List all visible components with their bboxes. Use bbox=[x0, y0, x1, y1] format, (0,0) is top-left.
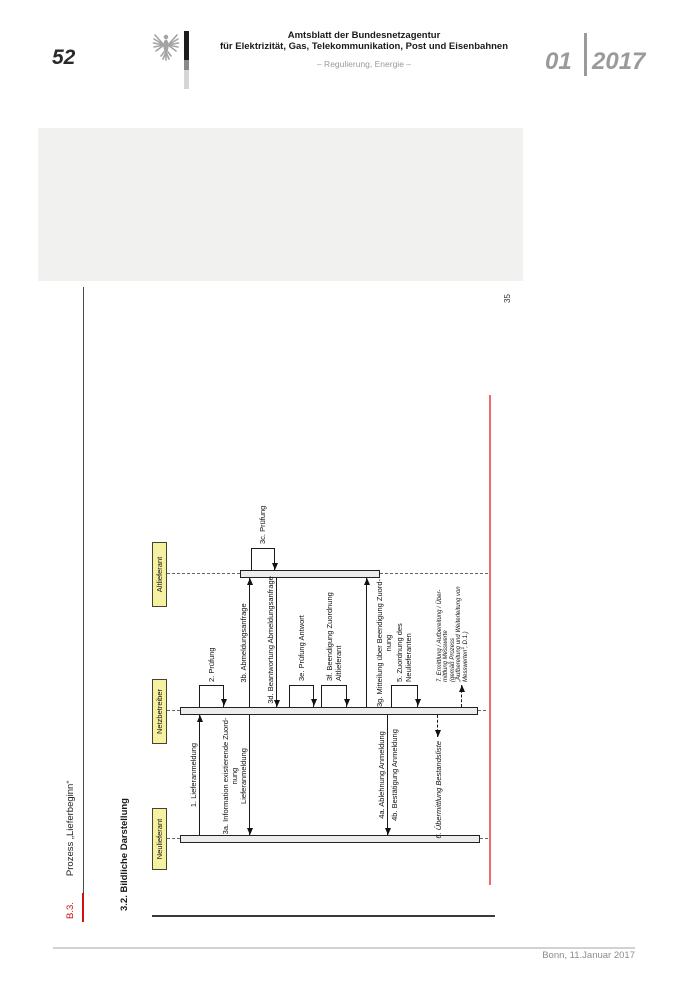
masthead: Amtsblatt der Bundesnetzagentur für Elek… bbox=[180, 31, 548, 69]
msg-2-pruefung-loop-head bbox=[221, 700, 227, 707]
msg-3c-pruefung-loop-side bbox=[252, 548, 275, 549]
msg-3b-abmeldungsanfrage-arrow bbox=[249, 578, 250, 707]
inner-page-number: 35 bbox=[503, 283, 512, 303]
msg-2-label: 2. Prüfung bbox=[207, 647, 216, 682]
chapter-title: Prozess „Lieferbeginn“ bbox=[65, 781, 76, 877]
lifeline-netzbetreiber-1 bbox=[478, 711, 486, 712]
actor-box-netzbetreiber: Netzbetreiber bbox=[152, 679, 167, 744]
msg-3e-label: 3e. Prüfung Antwort bbox=[297, 615, 306, 681]
msg-3a-label: 3a. Information existierende Zuord-nungL… bbox=[221, 718, 248, 835]
msg-6-label: 6. Übermittlung Bestandsliste bbox=[434, 741, 443, 839]
msg-3e-pruefung-antwort-loop-top bbox=[289, 685, 290, 707]
msg-3b-abmeldungsanfrage-arrow-head bbox=[247, 579, 253, 586]
msg-3f-beendigung-loop-side bbox=[322, 685, 347, 686]
issue-separator-bar bbox=[584, 33, 587, 76]
activation-bar-netzbetreiber bbox=[180, 707, 478, 715]
msg-3g-mitteilung-arrow bbox=[366, 578, 367, 707]
lifeline-neulieferant-1 bbox=[480, 839, 488, 840]
lifeline-neulieferant-0 bbox=[167, 839, 180, 840]
chapter-heading: B.3.Prozess „Lieferbeginn“ bbox=[65, 719, 76, 919]
footer-rule bbox=[53, 947, 635, 949]
sequence-diagram: NeulieferantNetzbetreiberAltlieferant1. … bbox=[150, 387, 495, 917]
msg-5-label: 5. Zuordnung desNeulieferanten bbox=[396, 623, 413, 682]
section-heading: 3.2. Bildliche Darstellung bbox=[119, 776, 130, 911]
msg-3d-beantwortung-arrow bbox=[276, 578, 277, 707]
federal-eagle-logo bbox=[152, 30, 180, 68]
gazette-subtitle: – Regulierung, Energie – bbox=[180, 59, 548, 69]
actor-box-neulieferant: Neulieferant bbox=[152, 808, 167, 870]
logo-separator-bar-light bbox=[184, 70, 189, 89]
msg-3d-label: 3d. Beantwortung Abmeldungsanfrage bbox=[266, 576, 275, 704]
msg-5-zuordnung-loop-side bbox=[392, 685, 418, 686]
chapter-heading-rule bbox=[83, 287, 84, 893]
msg-7-label: 7. Ermittlung / Aufbereitung / Über-mitt… bbox=[437, 586, 469, 682]
msg-1-lieferanmeldung-arrow bbox=[199, 715, 200, 835]
msg-3g-label: 3g. Mitteilung über Beendigung Zuord-nun… bbox=[376, 579, 393, 707]
activation-bar-altlieferant bbox=[240, 570, 380, 578]
lifeline-altlieferant-0 bbox=[167, 574, 240, 575]
msg-3c-label: 3c. Prüfung bbox=[258, 506, 267, 544]
msg-3c-pruefung-loop-head bbox=[272, 563, 278, 570]
msg-4-anmeldung-arrow-head bbox=[385, 828, 391, 835]
msg-3g-mitteilung-arrow-head bbox=[364, 579, 370, 586]
red-margin-line bbox=[489, 395, 491, 885]
msg-3e-pruefung-antwort-loop-head bbox=[311, 700, 317, 707]
msg-3f-beendigung-loop-head bbox=[344, 700, 350, 707]
page-number: 52 bbox=[52, 46, 75, 70]
msg-1-label: 1. Lieferanmeldung bbox=[189, 743, 198, 807]
gazette-title-line2: für Elektrizität, Gas, Telekommunikation… bbox=[180, 42, 548, 53]
msg-4-anmeldung-arrow bbox=[387, 715, 388, 835]
msg-2-pruefung-loop-top bbox=[199, 685, 200, 707]
footer-dateline: Bonn, 11.Januar 2017 bbox=[450, 950, 635, 961]
msg-2-pruefung-loop-side bbox=[200, 685, 224, 686]
msg-6-bestandsliste-arrow-head bbox=[435, 730, 441, 737]
msg-5-zuordnung-loop-head bbox=[415, 700, 421, 707]
content-placeholder-box bbox=[38, 128, 523, 281]
lifeline-altlieferant-1 bbox=[380, 574, 488, 575]
msg-4b-label: 4b. Bestätigung Anmeldung bbox=[390, 729, 399, 821]
chapter-heading-rule-red-segment bbox=[82, 893, 84, 922]
gazette-title-line1: Amtsblatt der Bundesnetzagentur bbox=[180, 31, 548, 42]
msg-3f-beendigung-loop-top bbox=[321, 685, 322, 707]
msg-3b-label: 3b. Abmeldungsanfrage bbox=[239, 603, 248, 682]
msg-3e-pruefung-antwort-loop-side bbox=[290, 685, 314, 686]
msg-3c-pruefung-loop-top bbox=[251, 548, 252, 571]
issue-year: 2017 bbox=[592, 48, 645, 76]
gazette-page: 52 Amtsblatt der Bundesnetzagentur für E… bbox=[0, 0, 700, 990]
issue-month: 01 bbox=[545, 48, 572, 76]
actor-box-altlieferant: Altlieferant bbox=[152, 542, 167, 607]
msg-3f-label: 3f. Beendigung ZuordnungAltlieferant bbox=[326, 592, 343, 681]
lifeline-netzbetreiber-0 bbox=[167, 711, 180, 712]
msg-7-messwerte-arrow-head bbox=[459, 686, 465, 693]
msg-3a-information-arrow bbox=[249, 715, 250, 835]
figure-border-line bbox=[152, 915, 495, 917]
msg-1-lieferanmeldung-arrow-head bbox=[197, 716, 203, 723]
msg-4a-label: 4a. Ablehnung Anmeldung bbox=[377, 731, 386, 819]
chapter-ref: B.3. bbox=[65, 902, 76, 919]
